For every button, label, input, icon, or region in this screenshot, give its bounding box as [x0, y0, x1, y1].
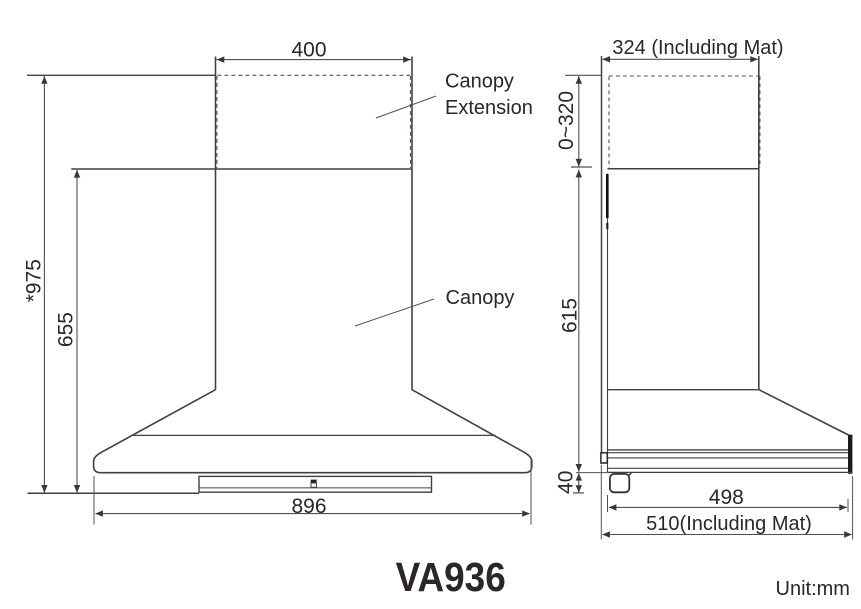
svg-text:0~320: 0~320 [555, 91, 578, 150]
svg-text:*975: *975 [22, 259, 45, 302]
svg-text:896: 896 [291, 495, 326, 518]
svg-text:Canopy: Canopy [446, 287, 515, 309]
svg-text:510(Including Mat): 510(Including Mat) [646, 513, 812, 535]
svg-text:615: 615 [559, 298, 582, 333]
svg-text:655: 655 [55, 312, 78, 347]
svg-text:VA936: VA936 [396, 555, 506, 600]
svg-text:Extension: Extension [445, 97, 533, 119]
svg-text:400: 400 [291, 38, 326, 61]
svg-text:40: 40 [555, 471, 578, 494]
svg-text:498: 498 [709, 486, 744, 509]
svg-text:324 (Including Mat): 324 (Including Mat) [612, 37, 783, 59]
svg-text:Unit:mm: Unit:mm [776, 578, 850, 600]
svg-text:Canopy: Canopy [445, 71, 514, 93]
